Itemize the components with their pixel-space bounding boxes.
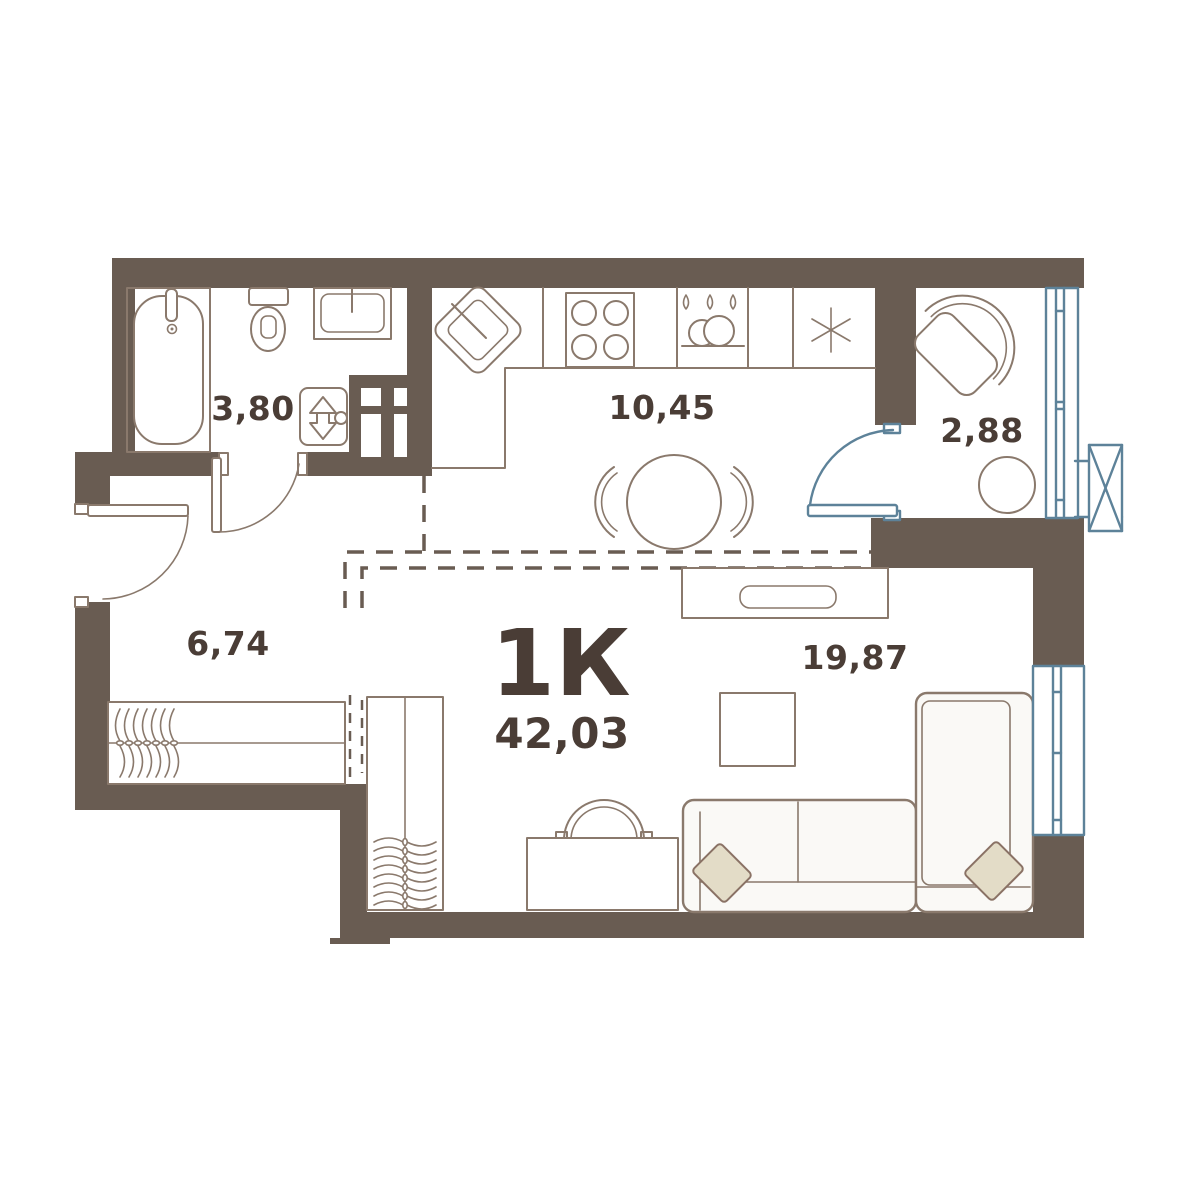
stove-icon	[566, 293, 634, 367]
wall-right-lower	[1033, 835, 1084, 938]
floor-plan-page: 3,80 10,45 2,88 6,74 19,87 1К 42,03	[0, 0, 1200, 1200]
jamb-entry-bottom	[75, 597, 88, 607]
hallway	[108, 702, 345, 784]
hallway-area-label: 6,74	[186, 624, 269, 663]
hall-wardrobe	[108, 702, 345, 784]
ac-unit-box-icon	[1075, 445, 1122, 531]
jamb-entry-top	[75, 504, 88, 514]
kitchen-area-label: 10,45	[609, 388, 716, 427]
wall-bath-bottom-left	[108, 452, 219, 476]
wall-left-upper	[112, 288, 135, 452]
bathroom-sink-icon	[314, 288, 391, 339]
wall-balcony-right-pier	[1033, 568, 1084, 666]
desk	[527, 838, 678, 910]
tv-stand	[682, 568, 888, 618]
dining-set	[595, 455, 753, 549]
desk-chair-icon	[556, 800, 652, 841]
fridge-icon	[812, 308, 850, 352]
utility-shaft	[349, 375, 429, 469]
dish-dryer-icon	[680, 295, 746, 367]
balcony-armchair	[902, 274, 1036, 408]
wall-left-lower	[75, 602, 110, 810]
wall-top	[112, 258, 1084, 288]
living-window	[1033, 666, 1084, 835]
apartment-type-label: 1К	[491, 610, 631, 717]
balcony-glazing	[1046, 288, 1078, 518]
living-room	[367, 568, 1033, 912]
corner-sink-icon	[429, 281, 525, 377]
balcony	[902, 274, 1036, 513]
wall-bottom-shadow	[330, 938, 390, 944]
bathroom-area-label: 3,80	[211, 389, 294, 428]
coffee-table	[720, 693, 795, 766]
wall-bottom	[340, 912, 1084, 938]
balcony-door	[808, 424, 900, 520]
living-area-label: 19,87	[802, 638, 909, 677]
wall-hall-bottom	[75, 784, 367, 810]
wall-kitchen-balcony	[875, 258, 916, 425]
balcony-area-label: 2,88	[940, 411, 1023, 450]
washing-machine-icon	[300, 388, 347, 445]
balcony-table	[979, 457, 1035, 513]
toilet-icon	[249, 288, 288, 351]
total-area-label: 42,03	[494, 709, 629, 758]
dining-table	[627, 455, 721, 549]
tall-wardrobe	[367, 697, 443, 910]
bathtub-icon	[127, 288, 210, 452]
entry-door	[88, 505, 188, 599]
wall-balcony-bottom	[871, 518, 1084, 568]
floor-plan: 3,80 10,45 2,88 6,74 19,87 1К 42,03	[0, 0, 1200, 1200]
